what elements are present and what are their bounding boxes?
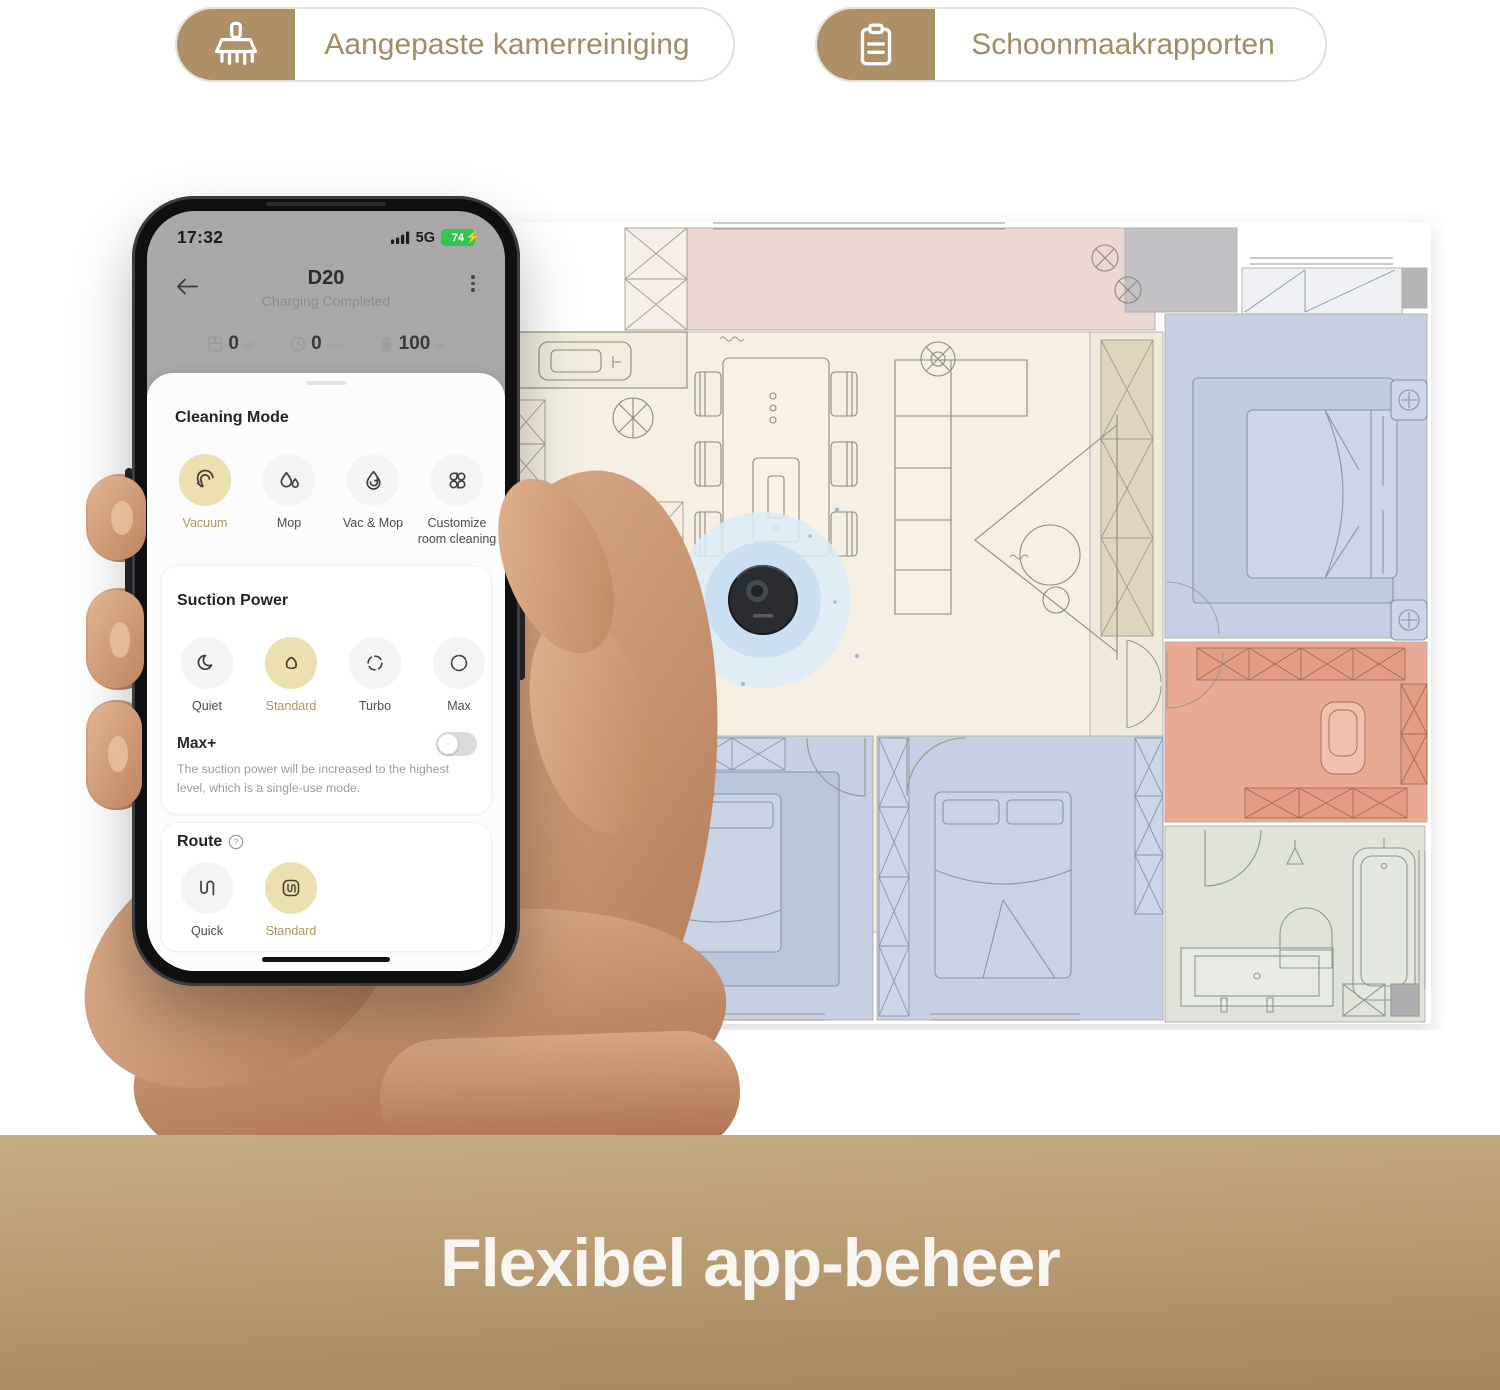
- route-card: Route ? Quick: [160, 822, 492, 952]
- mop-icon: [263, 454, 315, 506]
- network-type: 5G: [416, 230, 435, 246]
- stat-duration: 0min: [290, 333, 344, 355]
- svg-text:?: ?: [234, 837, 239, 847]
- feature-badge-cleaning-reports: Schoonmaakrapporten: [815, 7, 1327, 82]
- device-name: D20: [147, 267, 505, 290]
- route-options: Quick Standard: [165, 862, 491, 939]
- stat-area: 0m²: [207, 333, 256, 355]
- more-options-button[interactable]: [471, 275, 475, 292]
- closet-top: [1242, 268, 1402, 314]
- route-title: Route: [177, 833, 222, 851]
- clock-time: 17:32: [177, 227, 223, 248]
- route-help-icon[interactable]: ?: [228, 834, 244, 850]
- room-balcony: [687, 228, 1155, 330]
- vac-and-mop-icon: [347, 454, 399, 506]
- marketing-page: Aangepaste kamerreiniging Schoonmaakrapp…: [0, 0, 1500, 1390]
- max-plus-description: The suction power will be increased to t…: [177, 760, 475, 798]
- broom-icon: [177, 9, 295, 80]
- feature-badge-label: Schoonmaakrapporten: [935, 28, 1325, 62]
- app-header: D20 Charging Completed: [147, 267, 505, 309]
- room-entry: [1125, 228, 1237, 312]
- device-status: Charging Completed: [147, 293, 505, 309]
- suction-max[interactable]: Max: [417, 637, 501, 714]
- suction-turbo[interactable]: Turbo: [333, 637, 417, 714]
- feature-badge-label: Aangepaste kamerreiniging: [295, 28, 733, 62]
- suction-quiet[interactable]: Quiet: [165, 637, 249, 714]
- smartphone: 17:32 5G 74 ⚡ D20: [132, 196, 520, 986]
- furniture-bedroom-right: [1193, 378, 1427, 640]
- quiet-icon: [181, 637, 233, 689]
- max-plus-label: Max+: [177, 735, 216, 753]
- duration-icon: [290, 336, 306, 352]
- max-plus-toggle[interactable]: [436, 732, 477, 756]
- stat-battery: 100%: [378, 333, 445, 355]
- customize-room-icon: [431, 454, 483, 506]
- battery-icon: [378, 336, 394, 352]
- cleaning-mode-customize[interactable]: Customize room cleaning: [415, 454, 499, 548]
- floor-plan: [505, 210, 1445, 1030]
- status-bar: 17:32 5G 74 ⚡: [147, 227, 505, 248]
- cleaning-mode-vac-mop[interactable]: Vac & Mop: [331, 454, 415, 548]
- vacuum-icon: [179, 454, 231, 506]
- home-indicator[interactable]: [262, 957, 390, 962]
- floor-area-icon: [207, 336, 223, 352]
- cleaning-mode-mop[interactable]: Mop: [247, 454, 331, 548]
- route-quick[interactable]: Quick: [165, 862, 249, 939]
- banner-title: Flexibel app-beheer: [440, 1224, 1060, 1302]
- standard-fan-icon: [265, 637, 317, 689]
- standard-route-icon: [265, 862, 317, 914]
- charging-bolt-icon: ⚡: [465, 231, 480, 243]
- drag-handle[interactable]: [306, 381, 346, 385]
- suction-power-options: Quiet Standard: [165, 637, 491, 714]
- cleaning-mode-options: Vacuum Mop: [163, 454, 497, 548]
- signal-icon: [391, 231, 410, 244]
- turbo-icon: [349, 637, 401, 689]
- suction-standard[interactable]: Standard: [249, 637, 333, 714]
- suction-power-title: Suction Power: [177, 592, 288, 610]
- cleaning-mode-title: Cleaning Mode: [175, 409, 289, 427]
- banner: Flexibel app-beheer: [0, 1135, 1500, 1390]
- bottom-sheet: Cleaning Mode Vacuum: [147, 373, 505, 971]
- cleaning-stats: 0m² 0min 100%: [147, 333, 505, 355]
- route-standard[interactable]: Standard: [249, 862, 333, 939]
- cleaning-mode-vacuum[interactable]: Vacuum: [163, 454, 247, 548]
- suction-power-card: Suction Power Quiet: [160, 565, 492, 815]
- speaker-grille: [266, 202, 386, 206]
- quick-route-icon: [181, 862, 233, 914]
- feature-badge-room-cleaning: Aangepaste kamerreiniging: [175, 7, 735, 82]
- battery-indicator: 74 ⚡: [441, 229, 475, 246]
- max-fan-icon: [433, 637, 485, 689]
- furniture-bedroom-bl: [639, 738, 865, 986]
- clipboard-icon: [817, 9, 935, 80]
- phone-screen: 17:32 5G 74 ⚡ D20: [147, 211, 505, 971]
